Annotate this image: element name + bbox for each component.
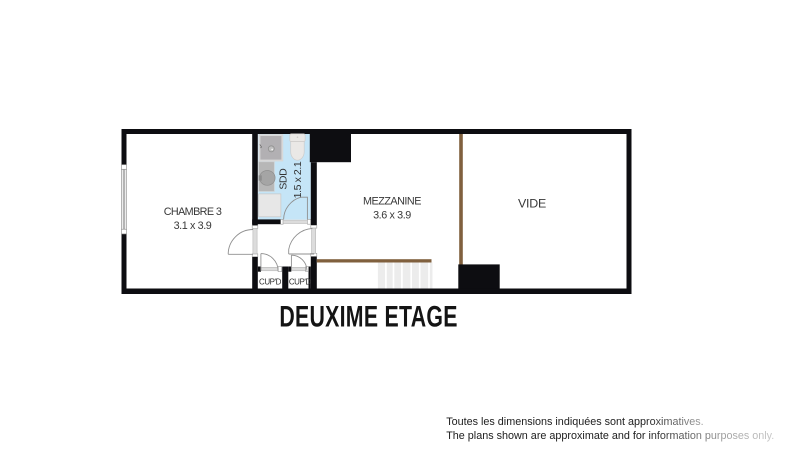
svg-text:VIDE: VIDE — [518, 197, 546, 211]
svg-text:CUP'D: CUP'D — [259, 277, 282, 286]
svg-text:Toutes les dimensions indiquée: Toutes les dimensions indiquées sont app… — [446, 416, 703, 428]
svg-text:MEZZANINE: MEZZANINE — [363, 196, 421, 208]
svg-text:The plans shown are approximat: The plans shown are approximate and for … — [446, 430, 774, 442]
svg-text:3.6 x 3.9: 3.6 x 3.9 — [373, 209, 411, 221]
svg-text:SDD: SDD — [278, 168, 290, 190]
svg-text:1.5 x 2.1: 1.5 x 2.1 — [292, 161, 304, 198]
svg-text:DEUXIME ETAGE: DEUXIME ETAGE — [279, 299, 457, 334]
svg-text:3.1 x 3.9: 3.1 x 3.9 — [174, 220, 212, 232]
svg-text:CHAMBRE 3: CHAMBRE 3 — [164, 206, 222, 218]
svg-text:CUP'D: CUP'D — [289, 277, 312, 286]
